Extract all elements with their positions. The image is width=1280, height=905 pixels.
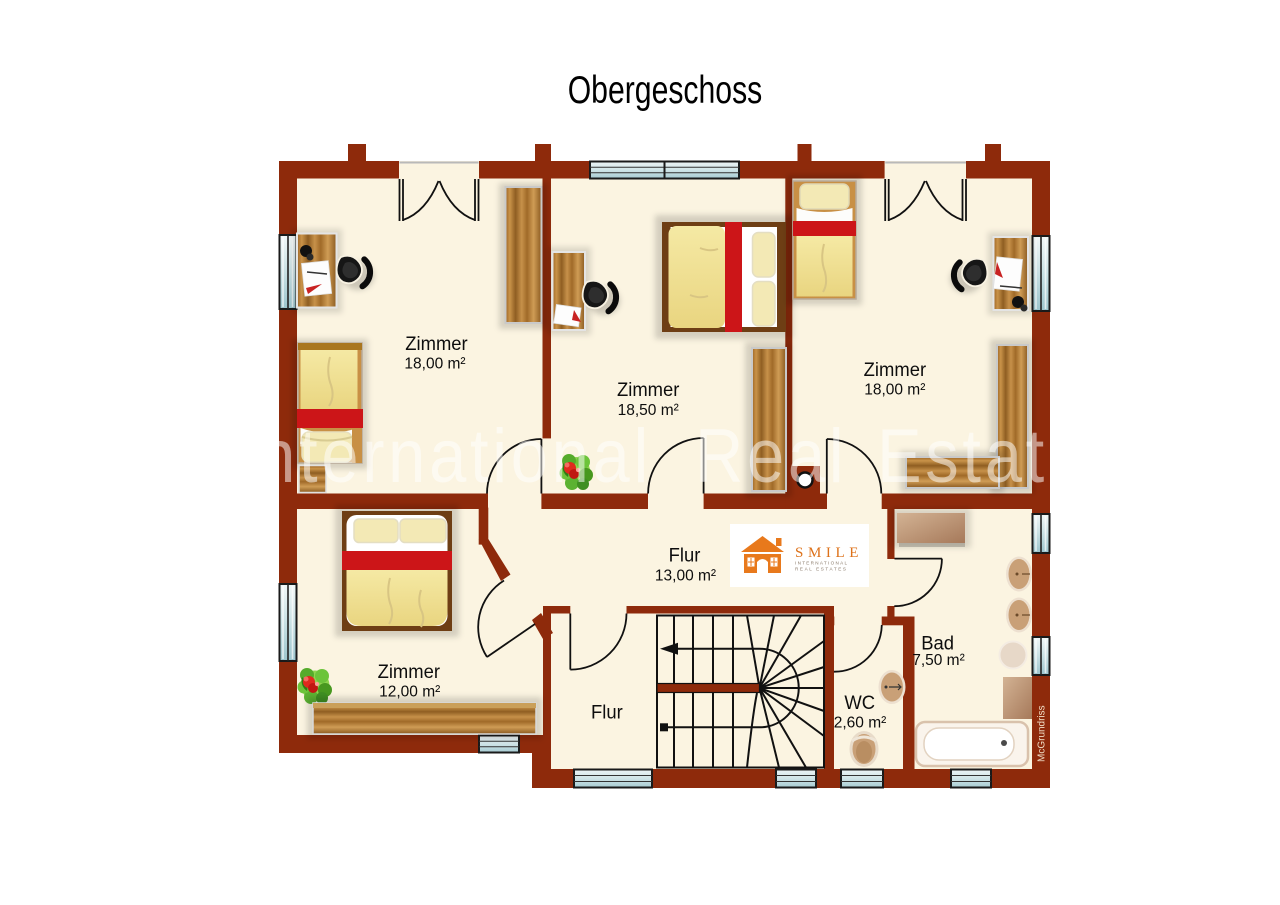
svg-text:Flur: Flur	[591, 702, 623, 724]
svg-text:12,00 m²: 12,00 m²	[379, 683, 440, 700]
svg-text:Zimmer: Zimmer	[864, 360, 927, 382]
svg-text:REAL ESTATES: REAL ESTATES	[795, 566, 848, 571]
svg-text:Zimmer: Zimmer	[405, 333, 468, 355]
svg-text:13,00 m²: 13,00 m²	[655, 567, 716, 584]
svg-text:International: International	[236, 414, 652, 499]
svg-text:Obergeschoss: Obergeschoss	[568, 68, 763, 112]
svg-text:2,60 m²: 2,60 m²	[834, 714, 887, 731]
svg-text:McGrundriss: McGrundriss	[1037, 705, 1048, 762]
svg-text:Zimmer: Zimmer	[617, 380, 680, 402]
svg-text:INTERNATIONAL: INTERNATIONAL	[795, 561, 848, 566]
svg-text:Flur: Flur	[669, 545, 701, 567]
svg-text:WC: WC	[844, 693, 875, 715]
svg-text:18,00 m²: 18,00 m²	[404, 355, 465, 372]
svg-text:18,00 m²: 18,00 m²	[864, 381, 925, 398]
svg-text:7,50 m²: 7,50 m²	[912, 652, 965, 669]
svg-text:SMILE: SMILE	[795, 545, 863, 561]
svg-text:Real: Real	[695, 414, 847, 499]
svg-text:Estates: Estates	[877, 414, 1126, 499]
svg-text:Zimmer: Zimmer	[378, 662, 441, 684]
